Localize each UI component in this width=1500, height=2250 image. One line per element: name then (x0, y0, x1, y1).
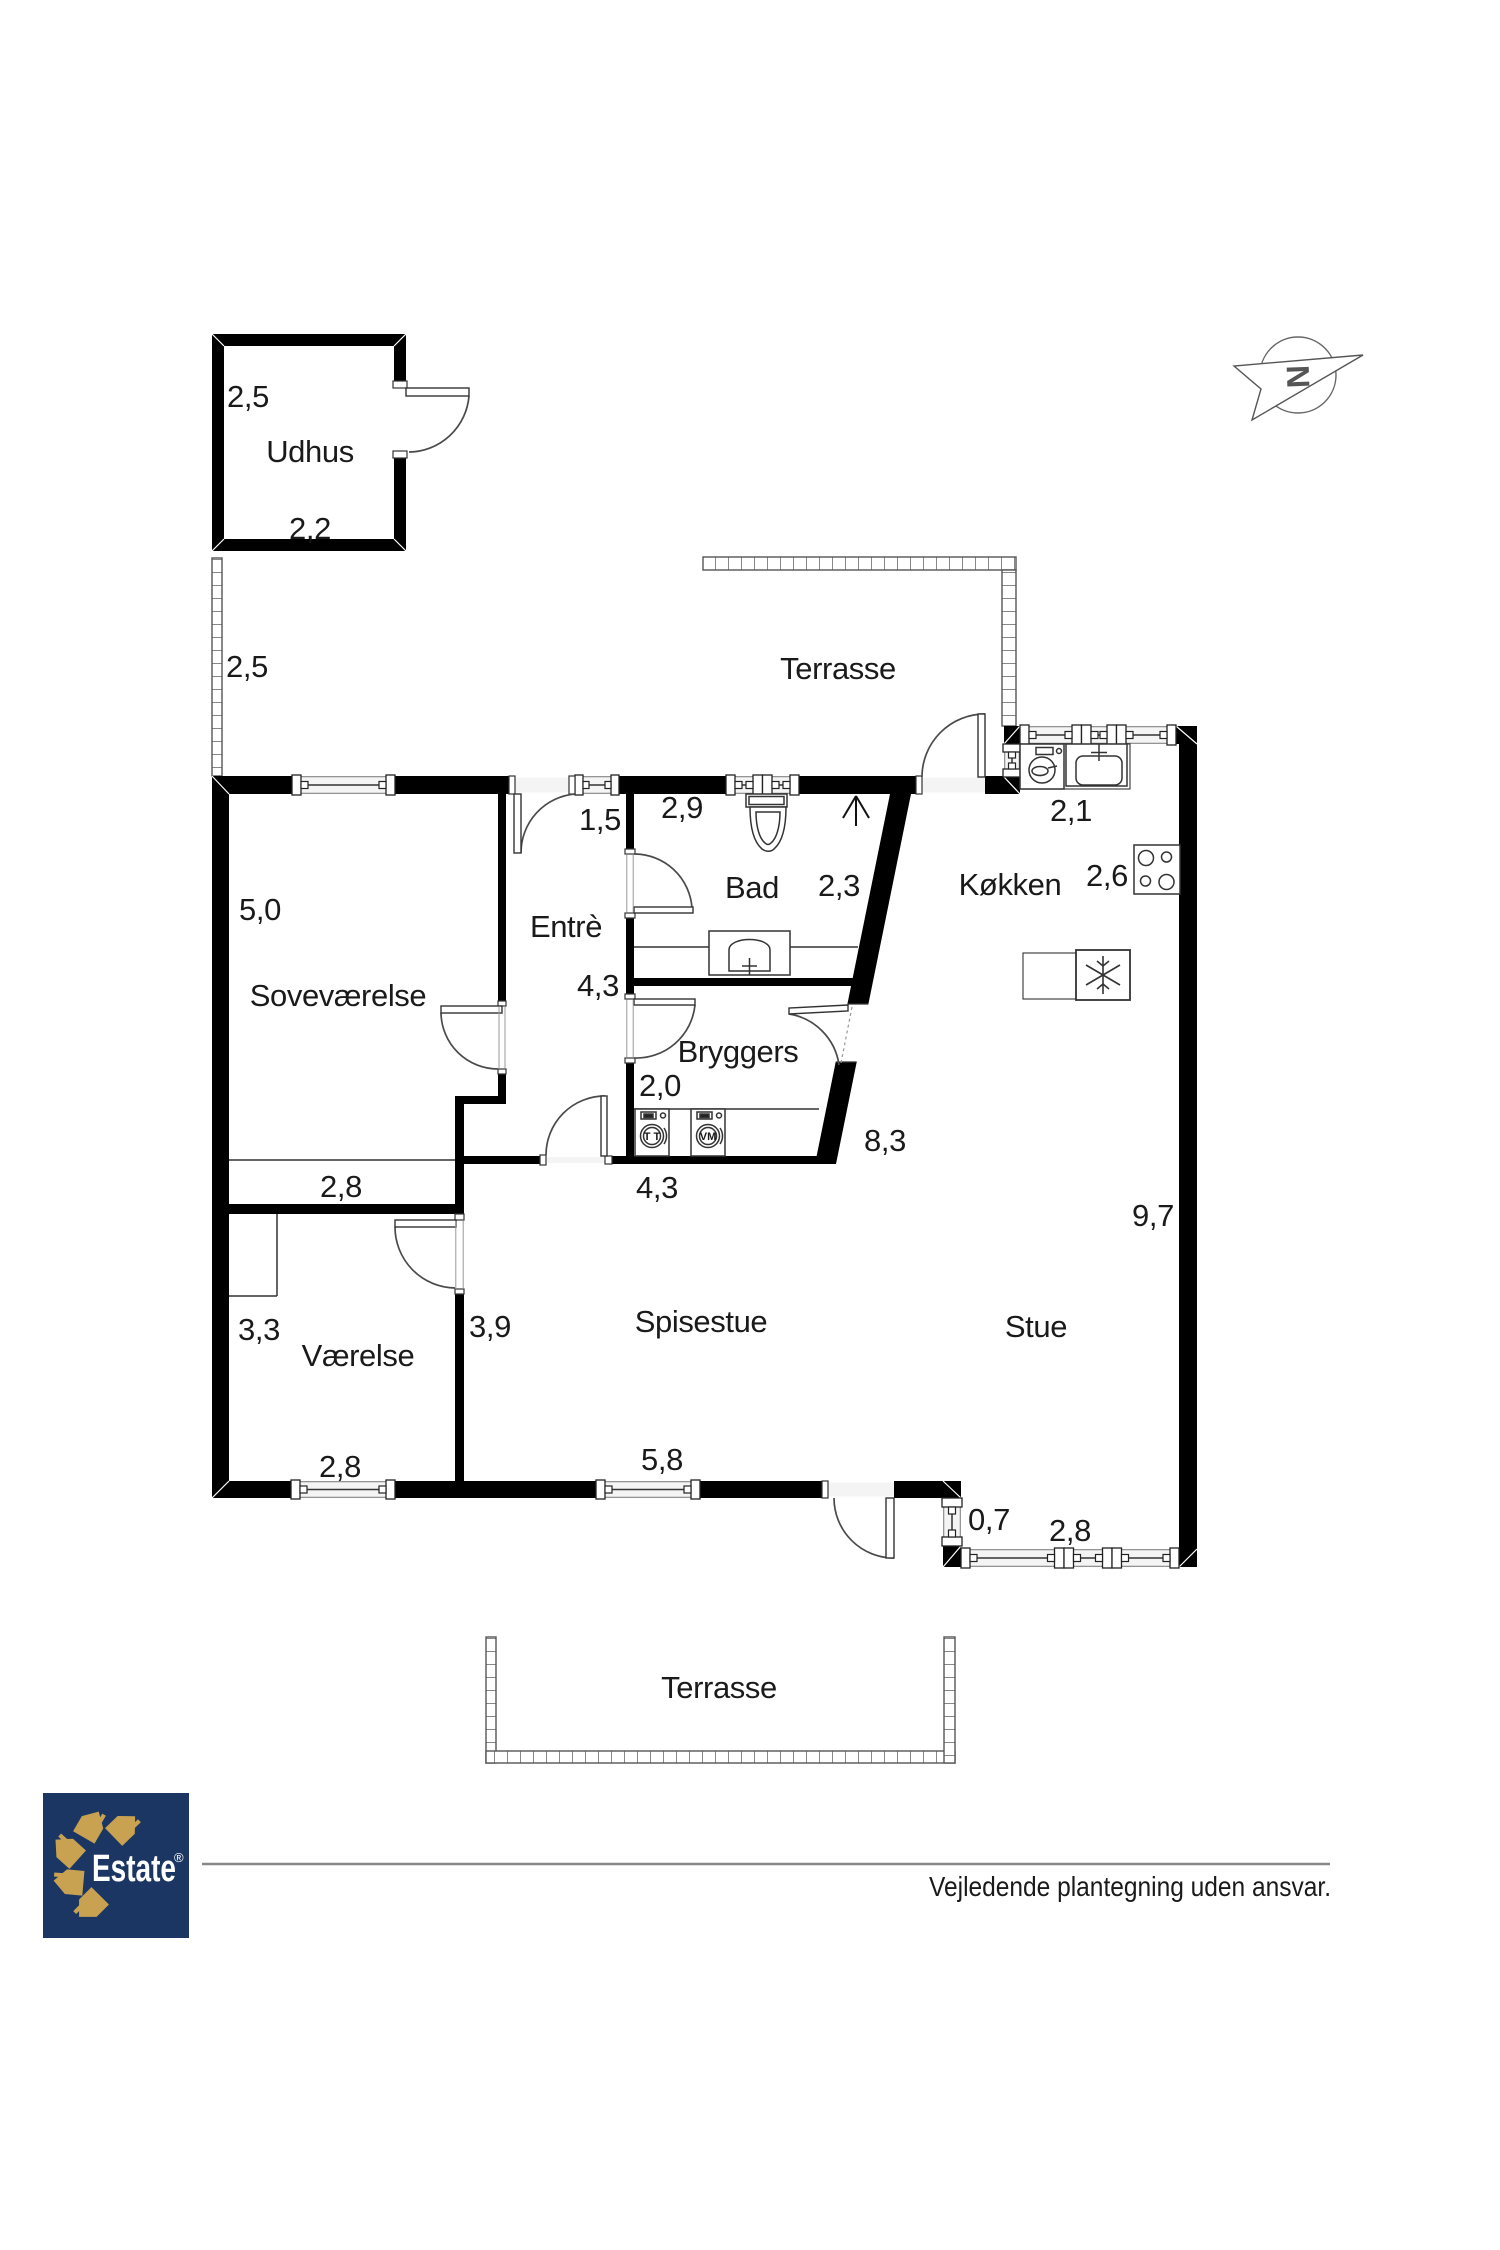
svg-text:3,9: 3,9 (469, 1309, 511, 1344)
svg-text:5,0: 5,0 (239, 892, 281, 927)
svg-text:9,7: 9,7 (1132, 1198, 1174, 1233)
svg-text:2,0: 2,0 (639, 1068, 681, 1103)
svg-text:Udhus: Udhus (266, 434, 354, 469)
svg-text:Terrasse: Terrasse (780, 651, 896, 686)
svg-text:Køkken: Køkken (959, 867, 1062, 902)
svg-text:Terrasse: Terrasse (661, 1670, 777, 1705)
svg-text:3,3: 3,3 (238, 1312, 280, 1347)
svg-text:Bryggers: Bryggers (678, 1034, 799, 1069)
svg-text:4,3: 4,3 (636, 1170, 678, 1205)
svg-text:1,5: 1,5 (579, 802, 621, 837)
svg-text:5,8: 5,8 (641, 1442, 683, 1477)
svg-text:2,6: 2,6 (1086, 858, 1128, 893)
svg-text:N: N (1280, 364, 1317, 388)
svg-text:4,3: 4,3 (577, 968, 619, 1003)
svg-text:8,3: 8,3 (864, 1123, 906, 1158)
svg-text:2,2: 2,2 (289, 511, 331, 546)
svg-text:Entrè: Entrè (530, 909, 602, 944)
svg-text:2,1: 2,1 (1050, 793, 1092, 828)
svg-text:Stue: Stue (1005, 1309, 1067, 1344)
svg-text:Soveværelse: Soveværelse (250, 978, 427, 1013)
svg-text:2,8: 2,8 (320, 1169, 362, 1204)
svg-text:2,3: 2,3 (818, 868, 860, 903)
svg-text:Bad: Bad (725, 870, 779, 905)
svg-text:2,5: 2,5 (226, 649, 268, 684)
svg-text:®: ® (174, 1850, 184, 1865)
svg-text:0,7: 0,7 (968, 1502, 1010, 1537)
svg-text:Værelse: Værelse (302, 1338, 415, 1373)
svg-text:Estate: Estate (92, 1848, 176, 1890)
svg-text:2,9: 2,9 (661, 790, 703, 825)
svg-text:Spisestue: Spisestue (635, 1304, 768, 1339)
svg-text:2,8: 2,8 (319, 1449, 361, 1484)
svg-text:VM: VM (700, 1131, 717, 1143)
svg-text:2,5: 2,5 (227, 379, 269, 414)
svg-text:T T: T T (644, 1131, 661, 1143)
svg-text:Vejledende plantegning uden an: Vejledende plantegning uden ansvar. (929, 1871, 1331, 1902)
svg-text:2,8: 2,8 (1049, 1513, 1091, 1548)
